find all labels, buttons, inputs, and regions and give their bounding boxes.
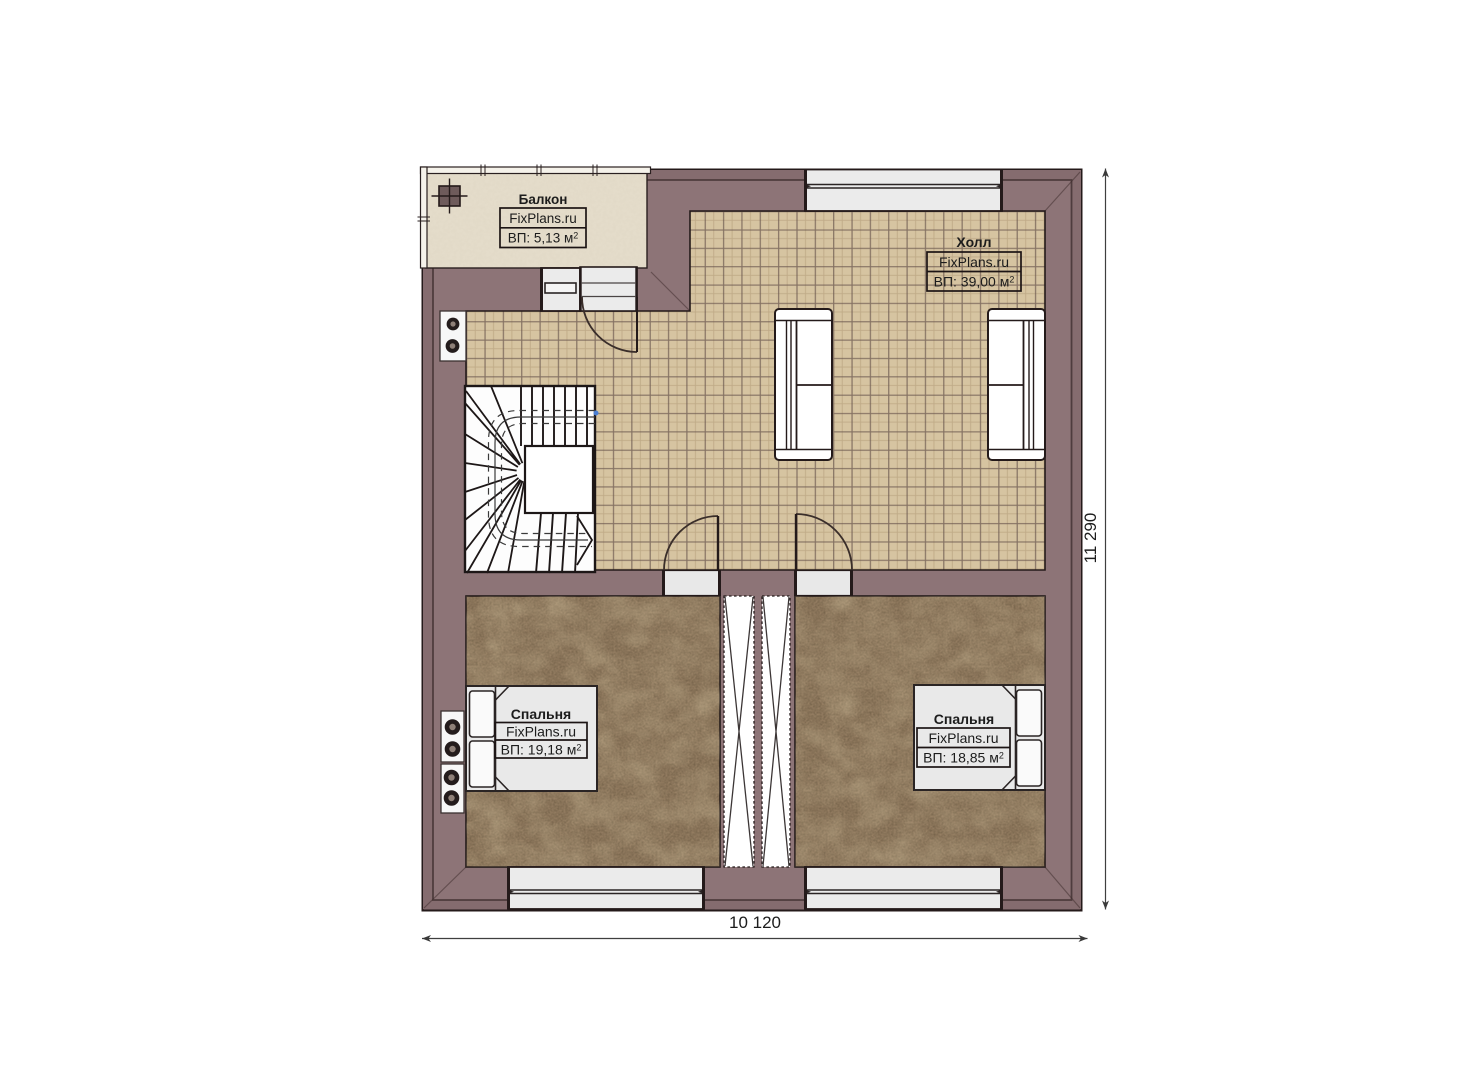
svg-text:ВП: 19,18 м2: ВП: 19,18 м2	[501, 742, 582, 758]
svg-text:FixPlans.ru: FixPlans.ru	[939, 254, 1009, 270]
svg-text:FixPlans.ru: FixPlans.ru	[506, 724, 576, 740]
svg-text:FixPlans.ru: FixPlans.ru	[509, 211, 577, 226]
svg-text:Спальня: Спальня	[511, 706, 571, 722]
svg-text:ВП: 39,00 м2: ВП: 39,00 м2	[934, 274, 1015, 290]
svg-text:11 290: 11 290	[1081, 513, 1100, 564]
svg-text:ВП: 5,13 м2: ВП: 5,13 м2	[508, 231, 579, 246]
svg-text:Спальня: Спальня	[934, 711, 994, 727]
svg-text:FixPlans.ru: FixPlans.ru	[928, 730, 998, 746]
svg-text:ВП: 18,85 м2: ВП: 18,85 м2	[923, 750, 1004, 766]
svg-text:Балкон: Балкон	[519, 192, 568, 207]
svg-text:Холл: Холл	[956, 234, 991, 250]
svg-text:10 120: 10 120	[729, 913, 781, 932]
